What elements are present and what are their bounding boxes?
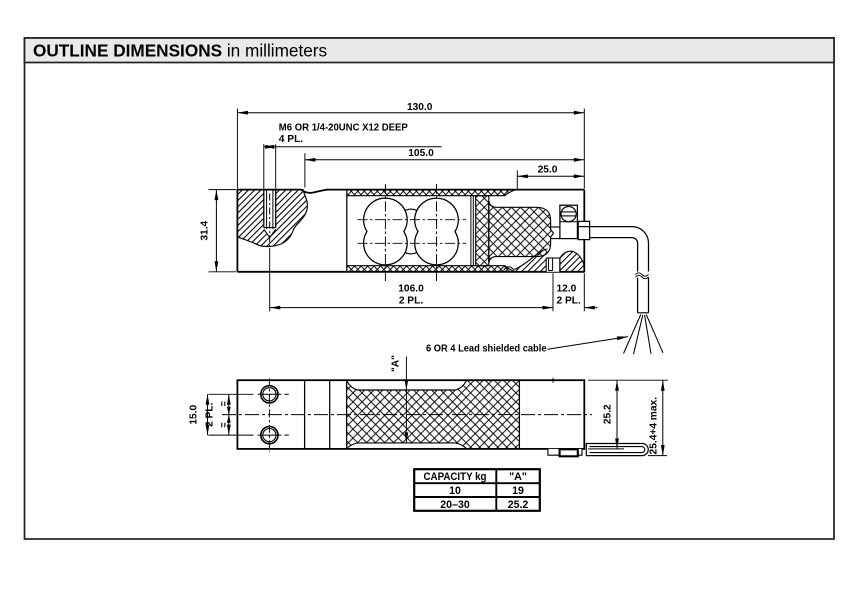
svg-text:25.2: 25.2 (603, 404, 614, 424)
svg-text:2 PL.: 2 PL. (399, 296, 424, 307)
svg-text:6 OR 4 Lead shielded cable: 6 OR 4 Lead shielded cable (426, 343, 547, 354)
svg-text:M6 OR 1/4-20UNC X12 DEEP: M6 OR 1/4-20UNC X12 DEEP (279, 123, 408, 134)
svg-text:25.0: 25.0 (538, 165, 558, 176)
svg-text:19: 19 (512, 485, 524, 497)
svg-text:2 PL.: 2 PL. (557, 296, 582, 307)
svg-text:106.0: 106.0 (398, 284, 424, 295)
svg-text:OUTLINE DIMENSIONS in millimet: OUTLINE DIMENSIONS in millimeters (33, 40, 327, 60)
svg-text:2 PL.: 2 PL. (204, 402, 215, 427)
svg-text:25.2: 25.2 (508, 499, 529, 511)
svg-text:"A": "A" (391, 355, 402, 372)
svg-text:20–30: 20–30 (440, 499, 470, 511)
svg-text:25.4+4 max.: 25.4+4 max. (649, 397, 660, 455)
svg-text:12.0: 12.0 (557, 284, 577, 295)
svg-text:130.0: 130.0 (407, 102, 433, 113)
svg-text:CAPACITY kg: CAPACITY kg (424, 471, 487, 483)
svg-text:4 PL.: 4 PL. (279, 134, 304, 145)
svg-text:31.4: 31.4 (200, 220, 211, 240)
svg-text:105.0: 105.0 (408, 148, 434, 159)
svg-text:"A": "A" (509, 471, 527, 483)
svg-text:10: 10 (449, 485, 461, 497)
svg-text:15.0: 15.0 (188, 404, 199, 424)
